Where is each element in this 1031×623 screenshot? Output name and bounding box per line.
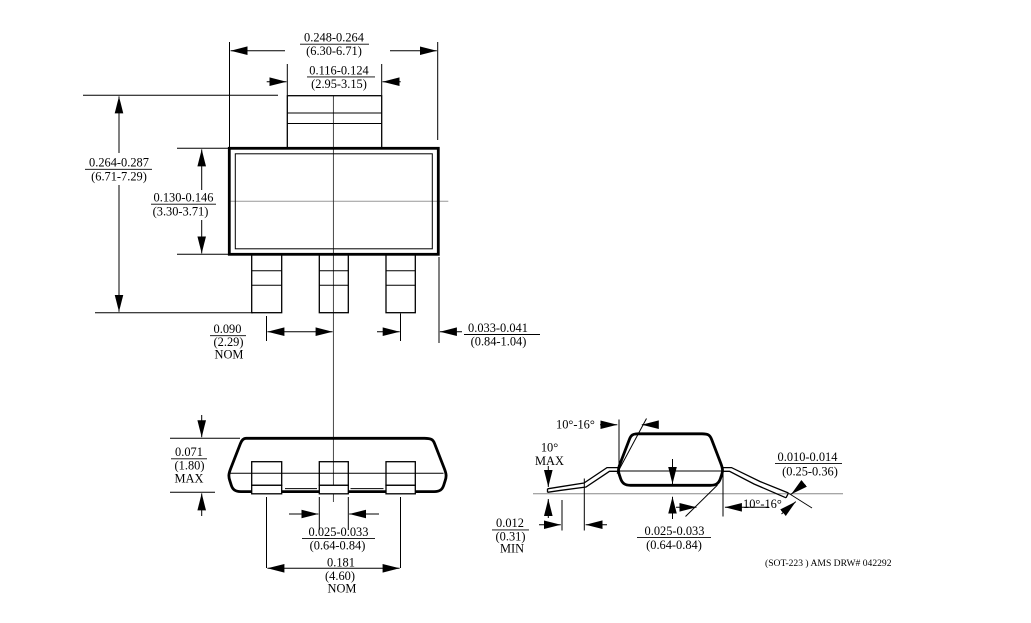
angle-side-label: 10°	[541, 441, 558, 455]
dim-front-height-in: 0.071	[175, 445, 203, 459]
sot223-package-drawing-page: 0.248-0.264 (6.30-6.71) 0.116-0.124 (2.9…	[0, 0, 1031, 623]
angle-top-label: 10°-16°	[556, 417, 595, 431]
dim-center-lead-width-in: 0.025-0.033	[309, 525, 369, 539]
dim-standoff-in: 0.012	[496, 516, 524, 530]
front-body-outline	[229, 438, 446, 491]
dim-body-height-in: 0.130-0.146	[154, 191, 214, 205]
side-view-extension-lines	[562, 419, 723, 531]
dim-lead-pitch-in: 0.090	[214, 322, 242, 336]
dim-body-height-mm: (3.30-3.71)	[153, 205, 209, 219]
left-lead-profile	[548, 468, 620, 493]
dim-foot-width-in: 0.025-0.033	[645, 524, 705, 538]
dim-standoff-qual: MIN	[500, 542, 524, 556]
dim-lead-pitch-qual: NOM	[215, 348, 244, 362]
dim-front-height-qual: MAX	[175, 472, 204, 486]
dim-overall-height-in: 0.264-0.287	[89, 156, 149, 170]
dim-tab-width-mm: (2.95-3.15)	[311, 77, 367, 91]
angle-foot-label: 10°-16°	[743, 497, 782, 511]
side-view: 10°-16° 10° MAX 0.012 (0.31) MIN 0.025-0…	[492, 417, 843, 555]
top-view: 0.248-0.264 (6.30-6.71) 0.116-0.124 (2.9…	[83, 31, 540, 503]
sot223-outline-drawing: 0.248-0.264 (6.30-6.71) 0.116-0.124 (2.9…	[0, 0, 1031, 623]
front-view-extension-lines	[170, 438, 401, 568]
dim-lead-width-in: 0.033-0.041	[468, 321, 528, 335]
dim-tab-width-in: 0.116-0.124	[309, 64, 368, 78]
front-view: 0.071 (1.80) MAX 0.025-0.033 (0.64-0.84)…	[170, 415, 446, 595]
dim-outer-lead-span-in: 0.181	[327, 556, 355, 570]
dim-outer-lead-span-qual: NOM	[328, 581, 357, 595]
dim-overall-height-mm: (6.71-7.29)	[91, 170, 147, 184]
dim-lead-thickness-mm: (0.25-0.36)	[782, 464, 838, 478]
angle-side-qual: MAX	[535, 454, 564, 468]
dim-body-width-mm: (6.30-6.71)	[306, 44, 362, 58]
dim-lead-thickness-in: 0.010-0.014	[778, 450, 838, 464]
dim-body-width-in: 0.248-0.264	[304, 31, 364, 45]
dim-lead-width-mm: (0.84-1.04)	[471, 334, 527, 348]
drawing-number-note: (SOT-223 ) AMS DRW# 042292	[765, 558, 892, 569]
dim-center-lead-width-mm: (0.64-0.84)	[310, 538, 366, 552]
dim-foot-width-mm: (0.64-0.84)	[646, 538, 702, 552]
dim-front-height-mm: (1.80)	[175, 458, 205, 472]
tab-outline	[287, 96, 381, 149]
